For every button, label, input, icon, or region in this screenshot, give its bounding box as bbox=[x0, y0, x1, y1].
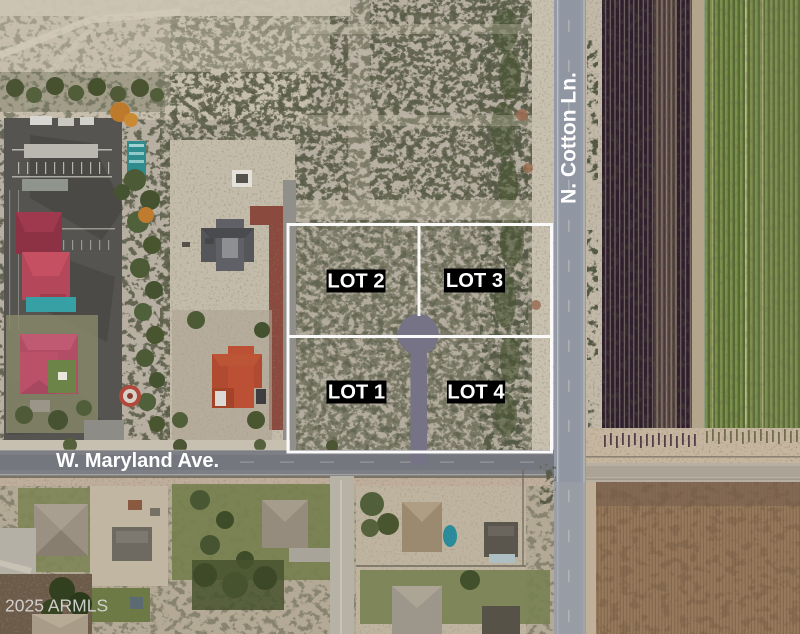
svg-text:N. Cotton Ln.: N. Cotton Ln. bbox=[558, 72, 581, 204]
svg-text:LOT 2: LOT 2 bbox=[327, 271, 384, 293]
svg-text:2025 ARMLS: 2025 ARMLS bbox=[5, 596, 108, 616]
svg-text:W. Maryland Ave.: W. Maryland Ave. bbox=[56, 450, 219, 472]
svg-text:LOT 4: LOT 4 bbox=[447, 382, 505, 404]
svg-text:LOT 1: LOT 1 bbox=[328, 382, 385, 404]
svg-text:LOT 3: LOT 3 bbox=[446, 270, 503, 292]
